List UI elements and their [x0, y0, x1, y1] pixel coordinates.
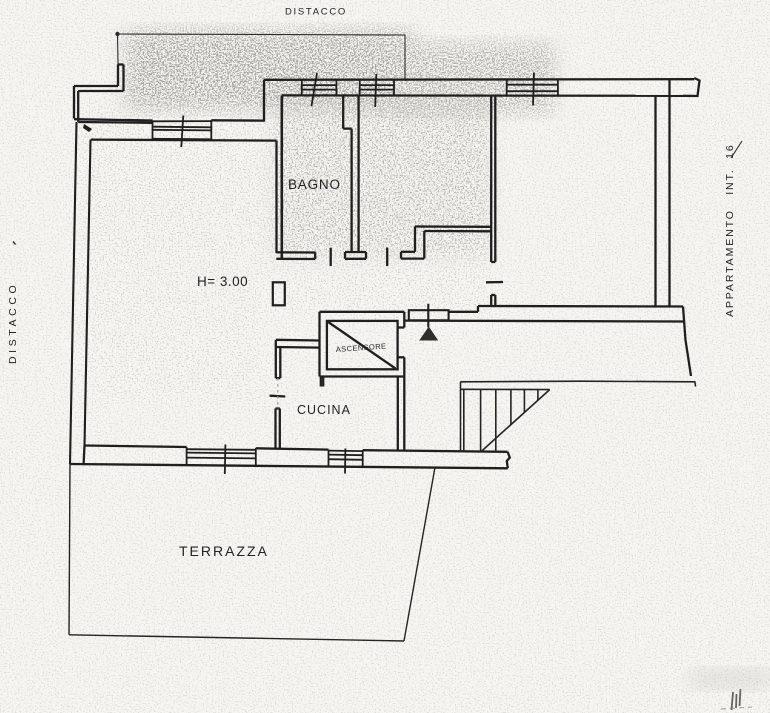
svg-text:TERRAZZA: TERRAZZA: [179, 543, 269, 559]
svg-text:DISTACCO: DISTACCO: [285, 7, 347, 18]
svg-text:H= 3.00: H= 3.00: [197, 274, 248, 289]
svg-text:APPARTAMENTO INT. 16: APPARTAMENTO INT. 16: [724, 143, 736, 317]
svg-text:DISTACCO: DISTACCO: [7, 282, 19, 364]
svg-text:BAGNO: BAGNO: [288, 177, 341, 192]
svg-text:CUCINA: CUCINA: [297, 403, 351, 417]
